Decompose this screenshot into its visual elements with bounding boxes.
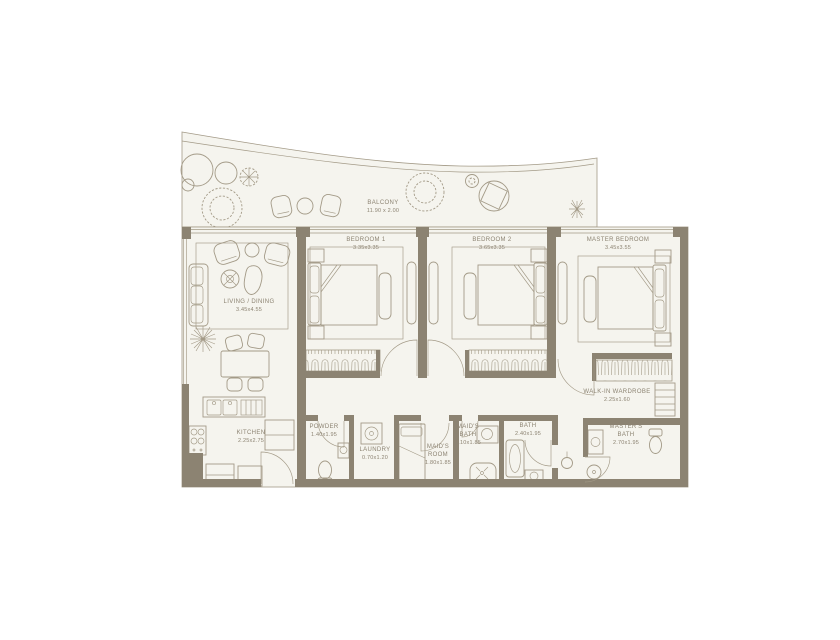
room-name: POWDER: [309, 424, 338, 432]
room-dims: 1.80x1.85: [423, 460, 453, 467]
wardrobe-icon: [306, 350, 380, 371]
room-dims: 3.35x3.35: [346, 245, 385, 252]
wardrobe-icon: [596, 360, 672, 381]
room-name: MAID'S BATH: [454, 424, 482, 440]
room-name: MASTER'S BATH: [607, 424, 645, 440]
room-dims: 2.70x1.95: [607, 440, 645, 447]
room-name: LIVING / DINING: [224, 299, 275, 307]
room-label-maids-bath: MAID'S BATH 1.10x1.85: [454, 424, 482, 447]
room-dims: 3.45x4.55: [224, 307, 275, 314]
room-dims: 2.25x2.75: [237, 438, 266, 445]
room-label-masters-bath: MASTER'S BATH 2.70x1.95: [607, 424, 645, 447]
room-name: BATH: [515, 423, 541, 431]
room-label-kitchen: KITCHEN 2.25x2.75: [237, 430, 266, 445]
room-name: BEDROOM 2: [472, 237, 511, 245]
room-name: BEDROOM 1: [346, 237, 385, 245]
room-name: KITCHEN: [237, 430, 266, 438]
room-label-maids-room: MAID'S ROOM 1.80x1.85: [423, 444, 453, 467]
room-label-balcony: BALCONY 11.90 x 2.00: [367, 200, 399, 215]
room-label-powder: POWDER 1.40x1.95: [309, 424, 338, 439]
room-dims: 0.70x1.20: [359, 455, 390, 462]
wardrobe-icon: [469, 350, 547, 371]
room-label-bedroom-2: BEDROOM 2 3.65x3.35: [472, 237, 511, 252]
room-dims: 3.65x3.35: [472, 245, 511, 252]
room-dims: 2.40x1.95: [515, 431, 541, 438]
room-label-bedroom-1: BEDROOM 1 3.35x3.35: [346, 237, 385, 252]
room-label-bath: BATH 2.40x1.95: [515, 423, 541, 438]
room-label-walk-in-wardrobe: WALK-IN WARDROBE 2.25x1.60: [583, 389, 650, 404]
room-name: MAID'S ROOM: [423, 444, 453, 460]
room-dims: 1.40x1.95: [309, 432, 338, 439]
floor-plan-drawing: [0, 0, 840, 640]
room-name: BALCONY: [367, 200, 399, 208]
floor-plan: BALCONY 11.90 x 2.00 LIVING / DINING 3.4…: [0, 0, 840, 640]
room-name: MASTER BEDROOM: [587, 237, 650, 245]
room-label-laundry: LAUNDRY 0.70x1.20: [359, 447, 390, 462]
room-dims: 11.90 x 2.00: [367, 208, 399, 215]
room-dims: 2.25x1.60: [583, 397, 650, 404]
room-label-living-dining: LIVING / DINING 3.45x4.55: [224, 299, 275, 314]
room-dims: 1.10x1.85: [454, 440, 482, 447]
room-label-master-bedroom: MASTER BEDROOM 3.45x3.55: [587, 237, 650, 252]
room-name: WALK-IN WARDROBE: [583, 389, 650, 397]
room-dims: 3.45x3.55: [587, 245, 650, 252]
room-name: LAUNDRY: [359, 447, 390, 455]
